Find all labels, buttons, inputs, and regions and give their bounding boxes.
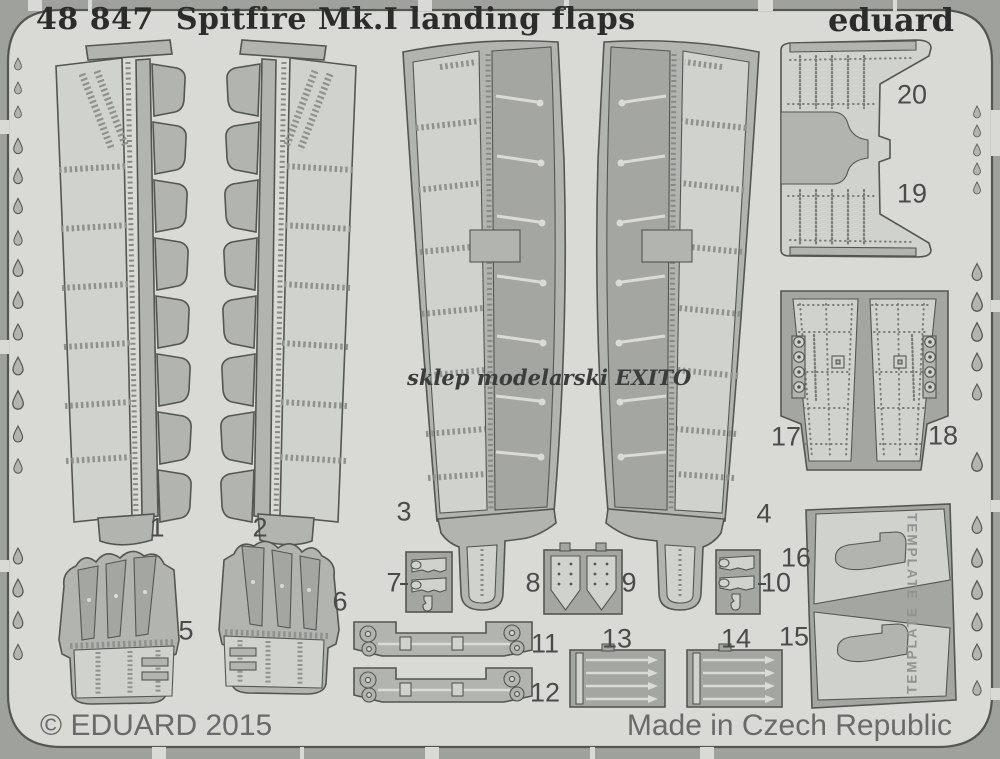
part-label-11: 11 xyxy=(531,629,559,660)
part-label-1: 1 xyxy=(149,513,164,544)
part-label-8: 8 xyxy=(525,568,540,599)
part-label-12: 12 xyxy=(530,678,560,709)
part-label-20: 20 xyxy=(897,80,927,111)
part-7-bracket-plate xyxy=(400,552,452,612)
part-label-19: 19 xyxy=(897,179,927,210)
part-6-rib-assembly xyxy=(219,541,339,694)
catalog-number: 48 847 xyxy=(36,2,154,37)
part-label-2: 2 xyxy=(252,513,267,544)
watermark: sklep modelarski EXITO xyxy=(407,365,691,390)
part-8-9-plate xyxy=(544,543,622,614)
part-label-6: 6 xyxy=(332,587,347,618)
brand-logo: eduard xyxy=(828,1,954,39)
part-label-4: 4 xyxy=(756,499,771,530)
sheet-title: 48 847Spitfire Mk.I landing flaps xyxy=(36,2,636,37)
part-label-18: 18 xyxy=(928,421,958,452)
part-10-bracket-plate xyxy=(716,550,766,614)
template-text-16: TEMPLATE xyxy=(905,513,920,601)
part-label-15: 15 xyxy=(779,622,809,653)
product-title: Spitfire Mk.I landing flaps xyxy=(176,2,636,37)
part-label-5: 5 xyxy=(178,616,193,647)
copyright-notice: © EDUARD 2015 xyxy=(40,709,272,743)
part-label-3: 3 xyxy=(396,497,411,528)
part-label-13: 13 xyxy=(602,624,632,655)
part-label-16: 16 xyxy=(781,543,811,574)
part-label-7: 7 xyxy=(386,568,401,599)
part-5-rib-assembly xyxy=(59,551,179,704)
photoetch-sheet-photo: 48 847Spitfire Mk.I landing flaps eduard… xyxy=(0,0,1000,759)
part-17-18-riveted-panels xyxy=(781,291,948,470)
template-text-15: TEMPLATE xyxy=(905,606,920,694)
part-label-17: 17 xyxy=(771,422,801,453)
made-in-text: Made in Czech Republic xyxy=(627,709,952,743)
part-label-9: 9 xyxy=(621,568,636,599)
part-15-16-templates xyxy=(806,504,956,708)
part-label-14: 14 xyxy=(721,624,751,655)
